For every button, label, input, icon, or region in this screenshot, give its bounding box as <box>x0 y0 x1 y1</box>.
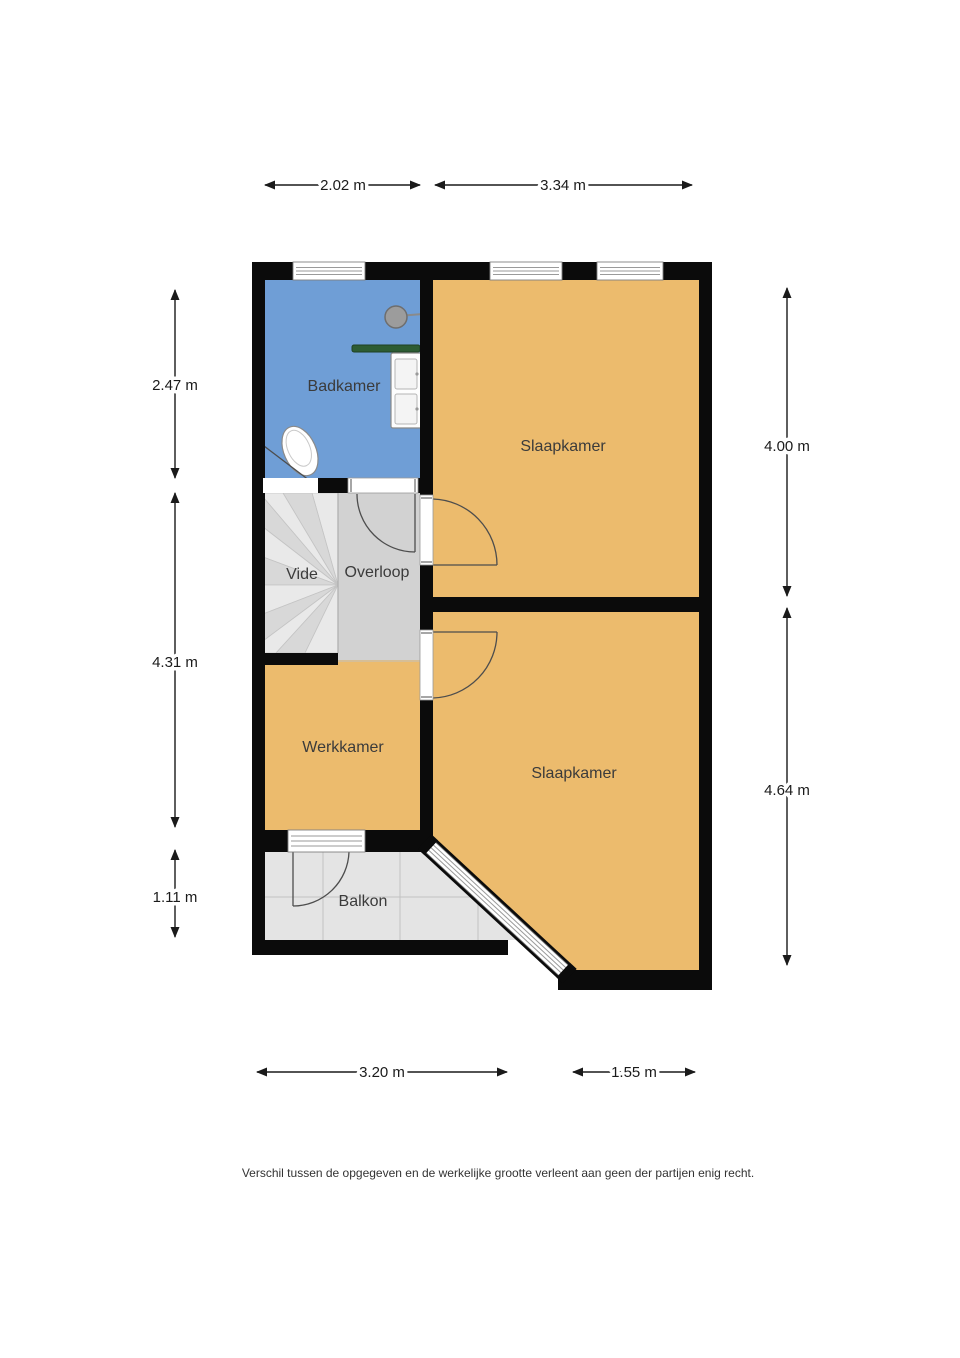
window <box>597 262 663 280</box>
dimension-right-slaapkamer-onder: 4.64 m <box>764 608 810 965</box>
footer-disclaimer: Verschil tussen de opgegeven en de werke… <box>242 1166 754 1180</box>
balkon-door-frame <box>288 830 365 852</box>
dimension-top-badkamer: 2.02 m <box>265 177 420 194</box>
double-washbasin-icon <box>391 353 422 428</box>
window <box>293 262 365 280</box>
wall-slaapkamer-south <box>558 970 712 990</box>
dimension-label: 4.00 m <box>764 438 810 455</box>
floorplan-canvas: 2.02 m 3.34 m 2.47 m 4.31 m 1.11 m 4.00 … <box>0 0 960 1358</box>
towel-rail-icon <box>352 345 420 352</box>
dimension-top-slaapkamer: 3.34 m <box>435 177 692 194</box>
dimension-label: 1.11 m <box>153 889 198 906</box>
room-label-slaapkamer-boven: Slaapkamer <box>520 438 606 455</box>
dimension-label: 3.20 m <box>359 1064 405 1081</box>
room-label-badkamer: Badkamer <box>308 378 382 395</box>
dimension-label: 3.34 m <box>540 177 586 194</box>
wall-balkon-south <box>252 940 508 955</box>
wall-mid-upper <box>420 262 433 478</box>
dimension-label: 1.55 m <box>611 1064 657 1081</box>
dimension-label: 4.64 m <box>764 782 810 799</box>
dimension-bottom-slaapkamer: 1.55 m <box>573 1064 695 1081</box>
overloop-door-frame <box>348 478 418 493</box>
slaapkamer-boven-door-frame <box>420 495 433 565</box>
dimension-left-badkamer: 2.47 m <box>152 290 198 478</box>
wall-vide-south <box>252 653 338 665</box>
window <box>490 262 562 280</box>
room-label-werkkamer: Werkkamer <box>302 739 384 756</box>
dimension-label: 4.31 m <box>152 654 198 671</box>
dimension-label: 2.02 m <box>320 177 366 194</box>
wall-slaapkamer-divider <box>420 597 712 612</box>
room-label-slaapkamer-onder: Slaapkamer <box>531 765 617 782</box>
room-label-overloop: Overloop <box>345 564 410 581</box>
dimension-bottom-balkon: 3.20 m <box>257 1064 507 1081</box>
dimension-left-vide: 4.31 m <box>152 493 198 827</box>
room-label-balkon: Balkon <box>339 893 388 910</box>
slaapkamer-onder-door-frame <box>420 630 433 700</box>
dimension-label: 2.47 m <box>152 377 198 394</box>
dimension-right-slaapkamer-boven: 4.00 m <box>764 288 810 596</box>
room-label-vide: Vide <box>286 566 318 583</box>
badkamer-door-opening <box>263 478 318 493</box>
wall-right <box>699 262 712 990</box>
dimension-left-balkon: 1.11 m <box>153 850 198 937</box>
